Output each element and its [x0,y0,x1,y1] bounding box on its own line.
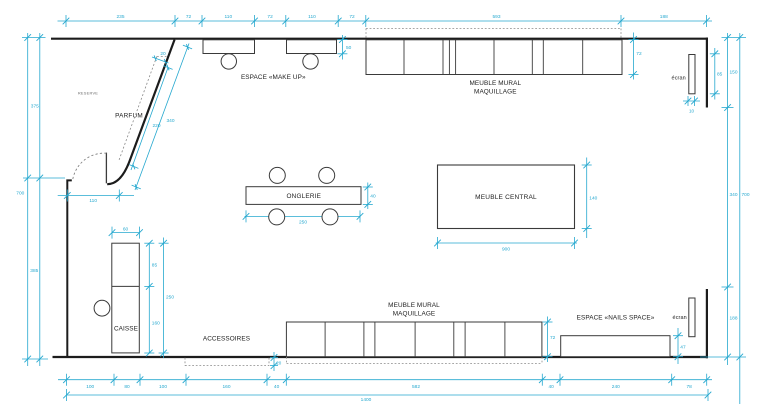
svg-text:40: 40 [274,384,280,390]
svg-text:700: 700 [742,192,750,198]
svg-text:PARFUM: PARFUM [115,113,143,120]
svg-text:MAQUILLAGE: MAQUILLAGE [474,88,517,95]
svg-text:140: 140 [589,196,597,202]
svg-text:250: 250 [299,219,307,225]
svg-text:ESPACE «NAILS SPACE»: ESPACE «NAILS SPACE» [577,315,655,322]
svg-text:100: 100 [86,384,94,390]
svg-text:375: 375 [31,104,39,110]
svg-text:593: 593 [492,14,500,20]
svg-text:ACCESSOIRES: ACCESSOIRES [203,336,250,343]
svg-text:160: 160 [222,384,230,390]
svg-text:MAQUILLAGE: MAQUILLAGE [393,311,436,318]
svg-text:235: 235 [116,14,124,20]
svg-text:écran: écran [672,76,686,82]
svg-text:CAISSE: CAISSE [114,326,138,333]
svg-text:340: 340 [730,192,738,198]
svg-text:250: 250 [166,295,174,301]
svg-text:188: 188 [660,14,668,20]
svg-text:60: 60 [123,226,129,232]
svg-text:72: 72 [267,14,273,20]
svg-text:MEUBLE MURAL: MEUBLE MURAL [388,302,440,309]
svg-text:ESPACE «MAKE UP»: ESPACE «MAKE UP» [241,74,306,81]
svg-text:85: 85 [152,263,158,269]
svg-text:385: 385 [30,268,38,274]
svg-text:ONGLERIE: ONGLERIE [286,193,321,200]
svg-text:MEUBLE MURAL: MEUBLE MURAL [469,80,521,87]
svg-text:110: 110 [224,14,232,20]
svg-text:47: 47 [680,345,686,351]
svg-text:110: 110 [89,198,97,204]
svg-text:340: 340 [166,118,174,124]
svg-text:700: 700 [16,191,24,197]
svg-text:20: 20 [276,360,282,365]
svg-text:900: 900 [502,246,510,252]
svg-text:72: 72 [186,14,192,20]
svg-text:188: 188 [730,316,738,322]
svg-text:72: 72 [349,14,355,20]
svg-text:1400: 1400 [361,397,372,403]
svg-text:72: 72 [550,335,556,341]
svg-text:40: 40 [549,384,555,390]
svg-text:MEUBLE CENTRAL: MEUBLE CENTRAL [475,194,537,201]
svg-text:72: 72 [636,51,642,57]
svg-text:150: 150 [730,70,738,76]
svg-text:110: 110 [308,14,316,20]
svg-text:20: 20 [160,51,166,57]
svg-text:78: 78 [687,384,693,390]
svg-text:582: 582 [412,384,420,390]
svg-text:100: 100 [159,384,167,390]
svg-text:10: 10 [689,108,695,113]
svg-text:écran: écran [673,315,687,321]
svg-text:160: 160 [152,321,160,327]
svg-text:50: 50 [346,45,352,51]
svg-text:240: 240 [612,384,620,390]
svg-text:85: 85 [717,71,723,77]
svg-text:40: 40 [370,193,376,199]
svg-text:RESERVE: RESERVE [78,91,98,96]
svg-text:80: 80 [124,384,130,390]
